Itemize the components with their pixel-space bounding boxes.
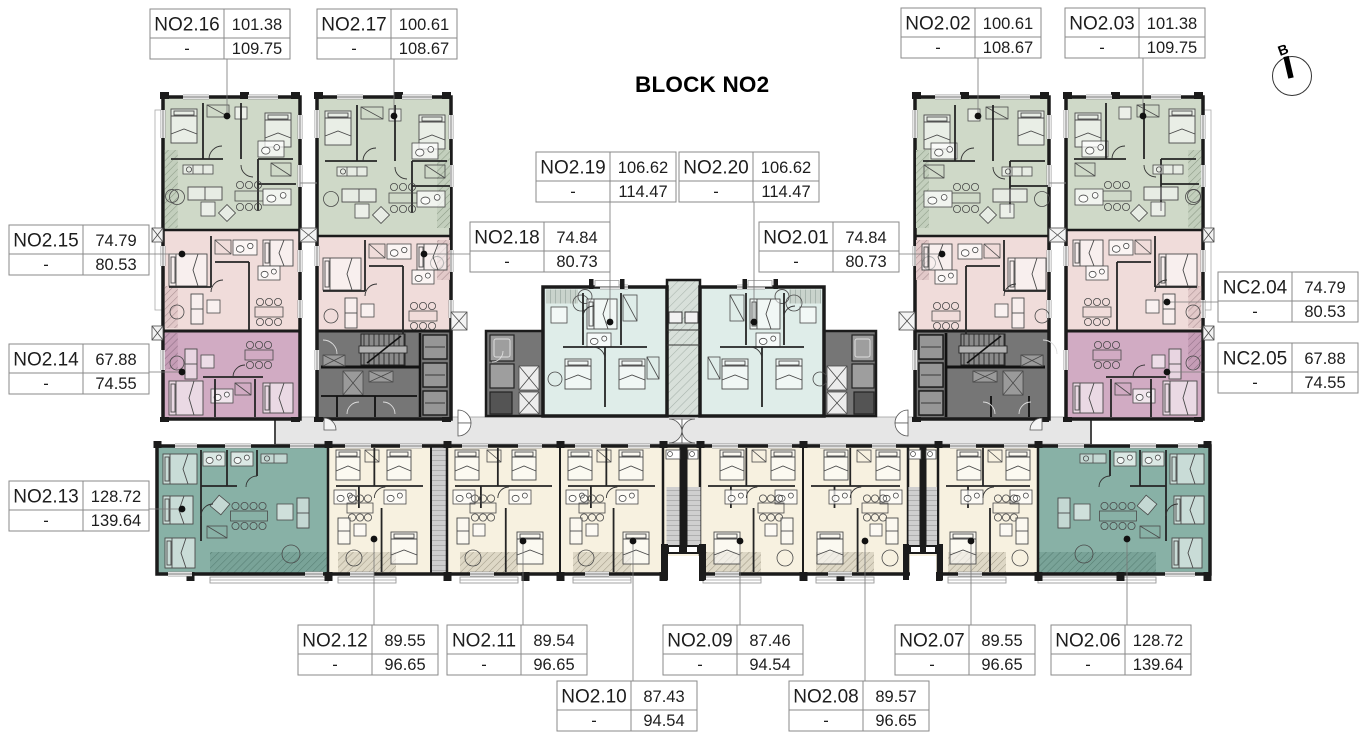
svg-text:108.67: 108.67 — [399, 40, 449, 58]
svg-text:109.75: 109.75 — [232, 40, 282, 58]
svg-text:-: - — [332, 656, 338, 674]
svg-text:-: - — [481, 656, 487, 674]
svg-text:NO2.16: NO2.16 — [154, 15, 219, 36]
svg-text:NO2.09: NO2.09 — [667, 631, 732, 652]
svg-text:67.88: 67.88 — [95, 351, 136, 369]
svg-text:89.55: 89.55 — [384, 632, 425, 650]
svg-text:NC2.04: NC2.04 — [1223, 278, 1288, 299]
svg-text:-: - — [935, 39, 941, 57]
svg-text:96.65: 96.65 — [533, 656, 574, 674]
svg-text:-: - — [43, 256, 49, 274]
svg-text:NO2.01: NO2.01 — [763, 228, 828, 249]
svg-text:80.73: 80.73 — [845, 253, 886, 271]
svg-text:100.61: 100.61 — [399, 16, 449, 34]
svg-text:-: - — [591, 712, 597, 730]
svg-text:67.88: 67.88 — [1304, 350, 1345, 368]
svg-text:-: - — [504, 253, 510, 271]
svg-text:-: - — [929, 656, 935, 674]
svg-text:108.67: 108.67 — [983, 39, 1033, 57]
svg-text:101.38: 101.38 — [232, 16, 282, 34]
svg-text:101.38: 101.38 — [1147, 15, 1197, 33]
svg-text:74.79: 74.79 — [95, 232, 136, 250]
svg-text:NO2.18: NO2.18 — [474, 228, 539, 249]
svg-text:-: - — [1252, 374, 1258, 392]
svg-text:-: - — [1099, 39, 1105, 57]
svg-text:NO2.12: NO2.12 — [302, 631, 367, 652]
svg-text:-: - — [184, 40, 190, 58]
svg-text:128.72: 128.72 — [1133, 632, 1183, 650]
svg-text:74.79: 74.79 — [1304, 279, 1345, 297]
svg-text:94.54: 94.54 — [643, 712, 684, 730]
svg-text:NO2.10: NO2.10 — [561, 687, 626, 708]
svg-text:109.75: 109.75 — [1147, 39, 1197, 57]
svg-text:87.46: 87.46 — [749, 632, 790, 650]
svg-text:-: - — [43, 512, 49, 530]
svg-text:96.65: 96.65 — [384, 656, 425, 674]
svg-text:80.73: 80.73 — [556, 253, 597, 271]
svg-text:128.72: 128.72 — [91, 488, 141, 506]
svg-text:BLOCK NO2: BLOCK NO2 — [635, 72, 769, 97]
svg-text:-: - — [43, 375, 49, 393]
svg-text:74.55: 74.55 — [1304, 374, 1345, 392]
svg-text:-: - — [570, 183, 576, 201]
svg-text:NO2.08: NO2.08 — [793, 687, 858, 708]
svg-text:NC2.05: NC2.05 — [1223, 349, 1287, 370]
svg-text:NO2.19: NO2.19 — [540, 158, 605, 179]
svg-text:89.57: 89.57 — [875, 688, 916, 706]
svg-text:NO2.13: NO2.13 — [13, 487, 78, 508]
svg-text:74.84: 74.84 — [556, 229, 597, 247]
svg-text:139.64: 139.64 — [91, 512, 141, 530]
svg-text:-: - — [1252, 303, 1258, 321]
svg-text:74.84: 74.84 — [845, 229, 886, 247]
svg-text:-: - — [1085, 656, 1091, 674]
svg-text:NO2.07: NO2.07 — [899, 631, 964, 652]
svg-text:74.55: 74.55 — [95, 375, 136, 393]
svg-text:-: - — [713, 183, 719, 201]
svg-text:87.43: 87.43 — [643, 688, 684, 706]
svg-text:-: - — [793, 253, 799, 271]
svg-text:NO2.15: NO2.15 — [13, 231, 78, 252]
svg-text:114.47: 114.47 — [761, 183, 810, 201]
svg-text:NO2.06: NO2.06 — [1055, 631, 1120, 652]
svg-text:96.65: 96.65 — [875, 712, 916, 730]
svg-text:96.65: 96.65 — [981, 656, 1022, 674]
svg-text:NO2.02: NO2.02 — [905, 14, 970, 35]
svg-text:NO2.14: NO2.14 — [13, 350, 79, 371]
svg-text:106.62: 106.62 — [618, 159, 668, 177]
svg-text:-: - — [697, 656, 703, 674]
svg-text:94.54: 94.54 — [749, 656, 790, 674]
svg-text:NO2.11: NO2.11 — [452, 631, 516, 652]
svg-text:139.64: 139.64 — [1133, 656, 1183, 674]
svg-text:NO2.20: NO2.20 — [683, 158, 748, 179]
svg-text:80.53: 80.53 — [95, 256, 136, 274]
svg-text:89.55: 89.55 — [981, 632, 1022, 650]
svg-text:100.61: 100.61 — [983, 15, 1033, 33]
svg-text:-: - — [823, 712, 829, 730]
svg-text:106.62: 106.62 — [761, 159, 811, 177]
svg-text:89.54: 89.54 — [533, 632, 574, 650]
svg-text:-: - — [351, 40, 357, 58]
svg-text:114.47: 114.47 — [618, 183, 667, 201]
svg-text:80.53: 80.53 — [1304, 303, 1345, 321]
svg-text:NO2.03: NO2.03 — [1069, 14, 1134, 35]
svg-text:NO2.17: NO2.17 — [321, 15, 386, 36]
